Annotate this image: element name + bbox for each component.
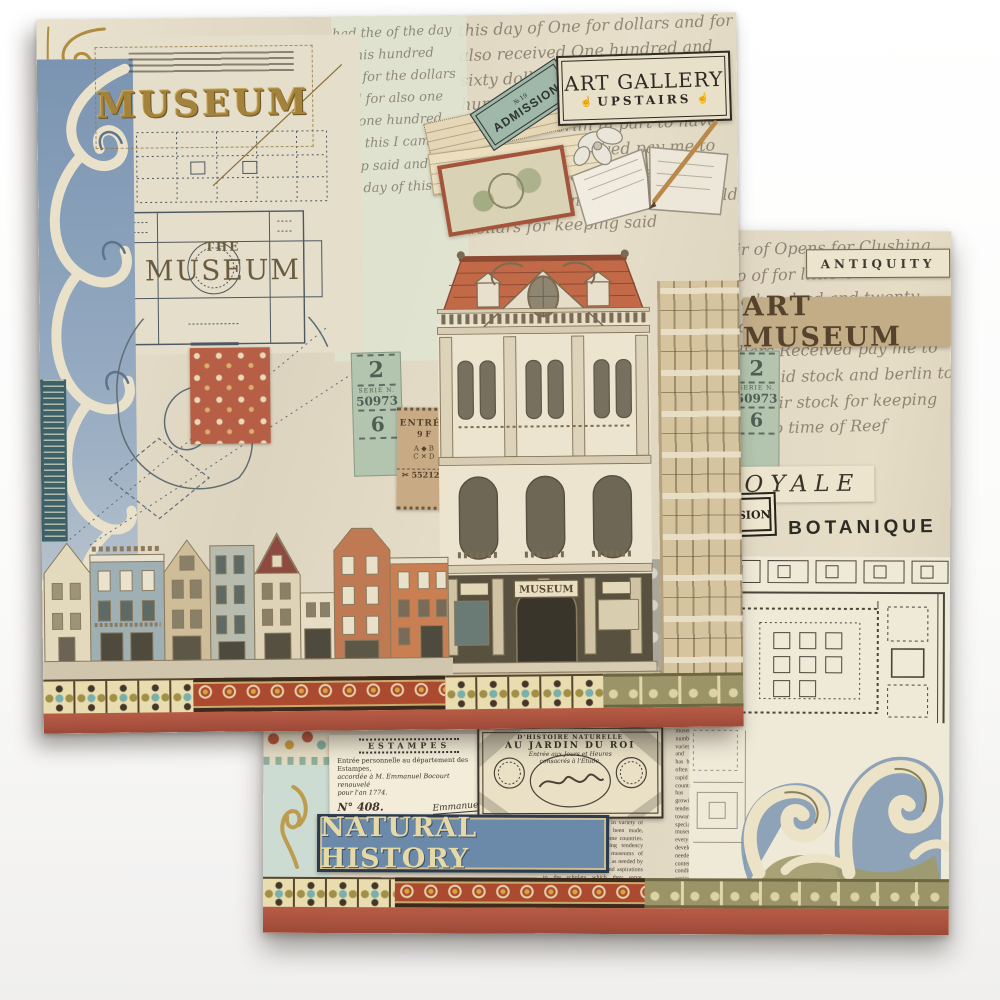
jardin-certificate: D'HISTOIRE NATURELLE AU JARDIN DU ROI En…	[477, 727, 663, 820]
museum-gold-title: MUSEUM	[99, 76, 308, 132]
estampes-line2: accordée à M. Emmanuel Bocourt renouvelé	[337, 772, 481, 789]
pointing-hand-icon: ☝	[580, 96, 593, 107]
terracotta-base-bar	[263, 907, 949, 935]
art-museum-banner: ART MUSEUM	[743, 296, 951, 347]
estampes-title: ESTAMPES	[337, 740, 481, 751]
neighbour-building	[657, 280, 744, 679]
ornament-band	[263, 727, 331, 757]
ticket-serial: 50973	[735, 391, 779, 405]
jardin-line3: consacrés à l'Étude.	[479, 758, 661, 766]
ornament-divider	[263, 757, 331, 765]
jardin-line1: AU JARDIN DU ROI	[479, 741, 661, 752]
ticket-number-bottom: 6	[735, 409, 779, 431]
tile-border-olive	[645, 878, 949, 909]
tile-border-olive	[603, 672, 743, 707]
museum-building-illustration: MUSEUM	[427, 243, 664, 681]
damask-patch	[190, 347, 271, 444]
antiquity-label: ANTIQUITY	[806, 249, 950, 279]
the-museum-museum: MUSEUM	[135, 253, 311, 288]
tile-border-mosaic	[193, 675, 445, 712]
the-museum-label: THE MUSEUM	[135, 239, 312, 293]
estampes-line3: pour l'an 1774.	[337, 788, 481, 797]
building-sign-text: MUSEUM	[519, 584, 574, 596]
floorplan-drawing	[715, 556, 950, 733]
ticket-number-top: 2	[352, 356, 401, 383]
botanique-label: BOTANIQUE	[788, 516, 951, 548]
townhouses-illustration	[41, 509, 453, 683]
pointing-hand-icon: ☝	[696, 93, 709, 104]
ticket-number-top: 2	[735, 355, 779, 380]
notebook-illustration	[557, 112, 743, 234]
natural-history-banner: NATURAL HISTORY	[317, 814, 609, 873]
art-gallery-line2: UPSTAIRS	[597, 92, 691, 109]
tile-border-mosaic	[395, 877, 645, 908]
scrapbook-sheet-front: this day of One for dollars and for also…	[36, 12, 743, 733]
ticket-serial: 50973	[353, 393, 401, 408]
ticket-number-bottom: 6	[353, 411, 402, 436]
estampes-line1: Entrée personnelle au département des Es…	[337, 756, 481, 773]
estampes-document: ESTAMPES Entrée personnelle au départeme…	[329, 734, 490, 819]
scroll-flourish-illustration	[689, 722, 950, 883]
